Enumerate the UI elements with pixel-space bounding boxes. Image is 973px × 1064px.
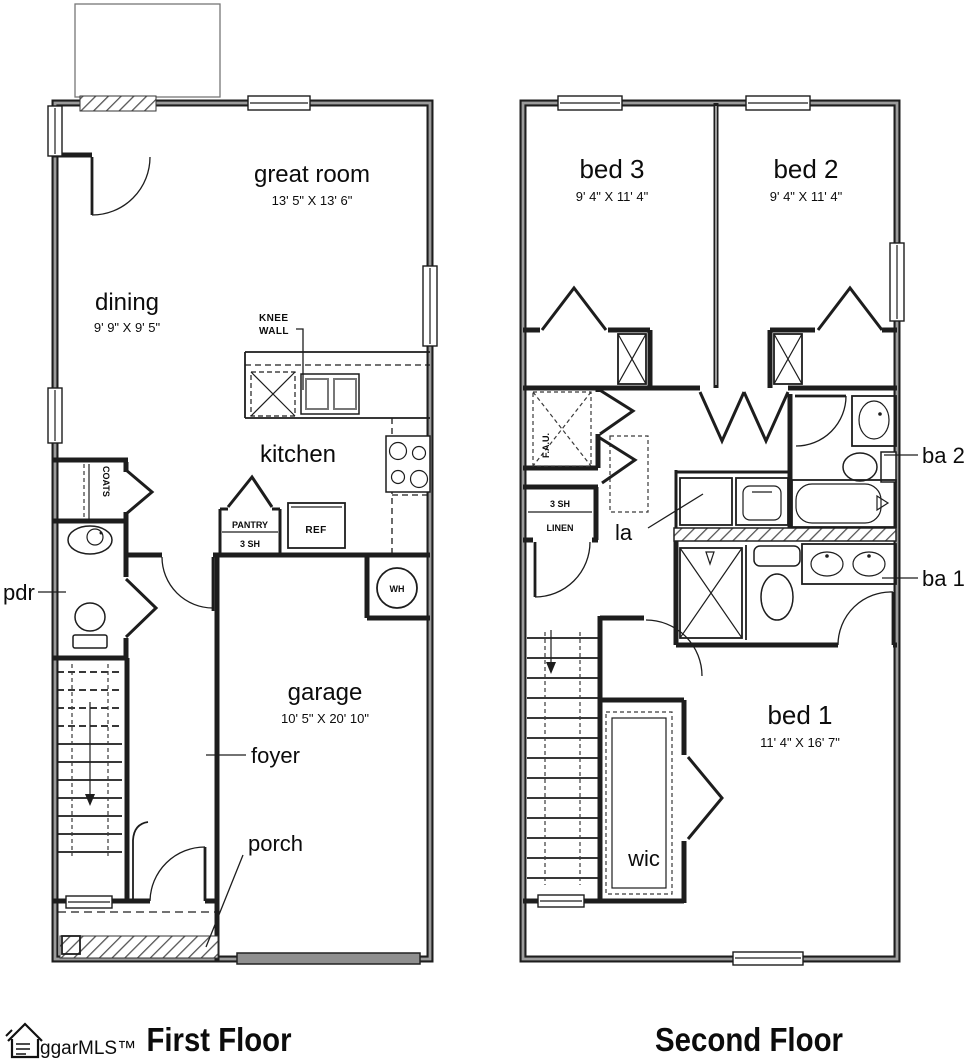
mls-logo: ggarMLS™ <box>6 1024 136 1059</box>
pdr-label: pdr <box>3 580 35 605</box>
bed2-door <box>744 392 788 441</box>
garage-label: garage <box>288 679 363 706</box>
second-floor-structure <box>523 96 904 965</box>
foyer-label: foyer <box>251 743 300 768</box>
laundry-label: la <box>615 520 633 545</box>
bed2-closet-jamb <box>774 334 802 384</box>
great-room-label: great room <box>254 161 370 188</box>
bed3-door <box>700 392 744 441</box>
ba2-sink <box>852 396 896 446</box>
wic-door <box>688 757 722 839</box>
wic-label: wic <box>627 846 660 871</box>
linen-label-line2: LINEN <box>547 523 574 533</box>
ba1-toilet <box>754 546 800 620</box>
patio-outline <box>75 4 220 97</box>
stair-down-arrow <box>546 662 556 674</box>
ba2-toilet <box>843 452 896 482</box>
fau-door <box>598 389 633 434</box>
second-floor-plan: bed 3 9' 4" X 11' 4" bed 2 9' 4" X 11' 4… <box>523 96 965 965</box>
stove <box>386 436 430 492</box>
mls-logo-text: ggarMLS™ <box>40 1038 136 1059</box>
bed3-dims: 9' 4" X 11' 4" <box>576 189 649 204</box>
kitchen-label: kitchen <box>260 441 336 468</box>
porch-hatch <box>60 936 218 958</box>
hall-closet-door <box>600 438 635 483</box>
first-floor-windows <box>48 96 437 908</box>
plumbing-wall-hatch <box>674 528 896 541</box>
pantry-label-line2: 3 SH <box>240 539 260 549</box>
coats-door <box>126 470 152 514</box>
ba2-label: ba 2 <box>922 443 965 468</box>
knee-wall-label-line1: KNEE <box>259 313 288 324</box>
refrigerator-label: REF <box>305 525 326 536</box>
linen-label-line1: 3 SH <box>550 499 570 509</box>
ba1-vanity <box>802 544 896 584</box>
ba2-tub <box>792 480 896 527</box>
powder-room-toilet <box>73 603 107 648</box>
bed2-dims: 9' 4" X 11' 4" <box>770 189 843 204</box>
coats-label: COATS <box>101 466 111 497</box>
bed2-closet-door <box>818 288 882 330</box>
dining-label: dining <box>95 289 159 316</box>
dryer <box>736 478 788 525</box>
mls-logo-house-icon <box>6 1024 42 1057</box>
washer <box>680 478 732 525</box>
bed3-closet-jamb <box>618 334 646 384</box>
footer: ggarMLS™ First Floor Second Floor <box>6 1021 843 1059</box>
floor-plan-drawing: great room 13' 5" X 13' 6" dining 9' 9" … <box>0 0 973 1064</box>
pantry-door <box>228 477 272 507</box>
stairs-second-floor <box>527 630 598 885</box>
knee-wall-label-line2: WALL <box>259 326 289 337</box>
bed2-label: bed 2 <box>773 154 838 184</box>
garage-door <box>237 953 420 964</box>
stairs-first-floor <box>57 664 148 901</box>
pantry-label-line1: PANTRY <box>232 520 268 530</box>
garage-dims: 10' 5" X 20' 10" <box>281 711 369 726</box>
powder-room-sink <box>68 526 112 554</box>
second-floor-title: Second Floor <box>655 1021 843 1058</box>
ba1-shower <box>680 548 742 638</box>
first-floor-title: First Floor <box>147 1021 292 1058</box>
great-room-dims: 13' 5" X 13' 6" <box>272 193 353 208</box>
bed3-label: bed 3 <box>579 154 644 184</box>
entry-hatch <box>80 96 156 111</box>
pdr-door <box>126 579 156 637</box>
bed1-dims: 11' 4" X 16' 7" <box>760 735 840 750</box>
stair-direction-arrow <box>85 794 95 806</box>
fau-label: F.A.U. <box>541 433 551 458</box>
first-floor-fixtures <box>68 372 430 648</box>
first-floor-plan: great room 13' 5" X 13' 6" dining 9' 9" … <box>3 4 437 964</box>
bed3-closet-door <box>542 288 606 330</box>
water-heater-label: WH <box>390 584 405 594</box>
ba1-label: ba 1 <box>922 566 965 591</box>
dining-dims: 9' 9" X 9' 5" <box>94 320 161 335</box>
porch-label: porch <box>248 831 303 856</box>
bed1-label: bed 1 <box>767 700 832 730</box>
